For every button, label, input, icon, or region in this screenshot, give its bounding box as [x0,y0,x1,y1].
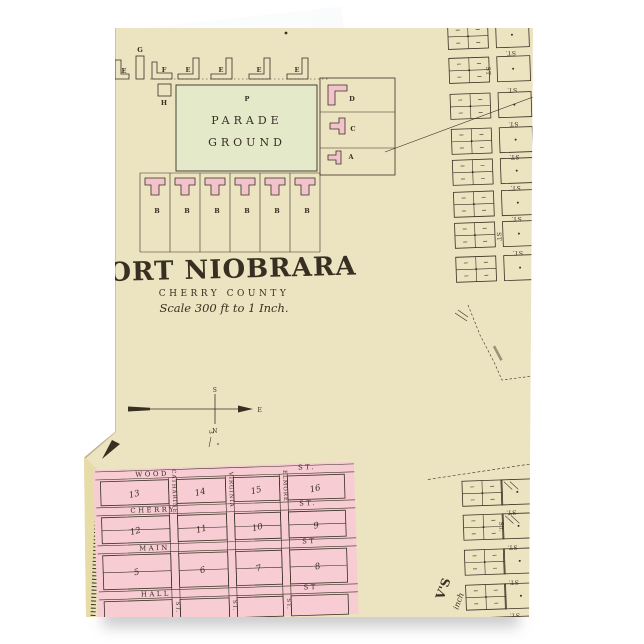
building-label: A [347,153,354,161]
street-hall: HALL [141,590,171,599]
right-street-label: ST. [512,249,523,256]
street-virginia-st: ST. [231,600,237,612]
town-plat: WOOD ST. CHERRY ST. MAIN ST HALL ST CATH… [93,462,359,622]
map-artwork: E G F E E E E H P PARADE GROUN [0,0,644,644]
barracks-label: B [304,207,310,215]
right-plat-top: ST. ST. ST. ST. ST. ST. ST. ST ST [448,22,538,283]
building-label: D [349,95,355,103]
section-number: 3 [207,430,214,434]
street-hall-st: ST [304,583,318,591]
compass-e: E [258,407,263,414]
right-street-label: ST. [507,543,518,550]
building-label: E [219,66,224,74]
street-main: MAIN [139,544,170,553]
building-d [328,85,347,105]
adjacent-map-scale-fragment: inch [451,591,465,610]
compass-rose: S N E [128,387,262,435]
right-street-label-vertical: ST. [497,522,504,533]
compass-feather [128,407,150,412]
right-street-label: ST. [506,508,517,515]
fort-plan: E G F E E E E H P PARADE GROUN [115,46,395,252]
building-label: H [161,99,167,107]
building-label: C [350,125,355,133]
right-street-label-vertical: ST [484,66,491,75]
adjacent-map-title-fragment: V'S [433,576,454,602]
building-a [328,151,341,164]
building-c [330,118,345,134]
survey-arrow [102,440,120,459]
street-cherry-st: ST. [299,499,317,508]
right-street-label: ST. [508,578,519,585]
street-elmore-st: ST. [285,598,291,610]
compass-s: S [213,387,218,394]
street-wood: WOOD [135,470,169,479]
county-label: CHERRY COUNTY [159,289,290,299]
right-street-label: ST. [506,86,517,93]
right-street-label: ST. [510,184,521,191]
right-street-label: ST. [508,120,519,127]
building-g [136,56,144,79]
street-wood-st: ST. [298,463,316,472]
card-front-map: E G F E E E E H P PARADE GROUN [0,0,644,644]
building-label: E [257,66,262,74]
right-street-label: ST. [509,153,520,160]
greeting-card-product-photo: E G F E E E E H P PARADE GROUN [0,0,644,644]
compass-arrowhead [238,406,253,413]
map-title: FORT NIOBRARA [89,252,357,289]
building-label: E [295,66,300,74]
street-virginia: VIRGINIA [227,471,234,508]
barracks-lots [140,173,320,252]
building-label: E [186,66,191,74]
barracks-label: B [154,207,160,215]
illegible-road-text [493,345,503,360]
street-elmore: ELMORE [281,470,288,502]
parade-label-1: PARADE [211,114,282,127]
street-catharine-st: ST. [174,602,180,614]
parade-marker: P [245,95,250,103]
right-street-label: ST. [511,215,522,222]
section-tick [209,437,211,447]
scale-label: Scale 300 ft to 1 Inch. [159,301,288,315]
dashed-road [455,305,533,380]
barracks-label: B [274,207,280,215]
hatched-lots [504,481,519,523]
building-label: E [122,67,127,75]
building-label: F [162,66,167,74]
ink-speck [285,32,288,35]
right-street-label: ST. [509,611,520,618]
right-plat-bottom: ST. ST. ST. ST. ST. [427,464,539,644]
map-sheet-edge [85,28,115,458]
title-block: FORT NIOBRARA CHERRY COUNTY Scale 300 ft… [89,252,357,315]
parade-label-2: GROUND [208,136,286,149]
barracks-label: B [184,207,190,215]
street-cherry: CHERRY [130,505,176,514]
street-main-st: ST [302,537,316,545]
right-street-label: ST. [505,49,516,56]
right-street-label-vertical: ST [495,232,502,241]
building-label: G [137,46,143,54]
officer-row-dividers [320,112,395,148]
barracks-label: B [244,207,250,215]
building-h [158,84,171,96]
dot-mark [217,443,219,445]
barracks-label: B [214,207,220,215]
